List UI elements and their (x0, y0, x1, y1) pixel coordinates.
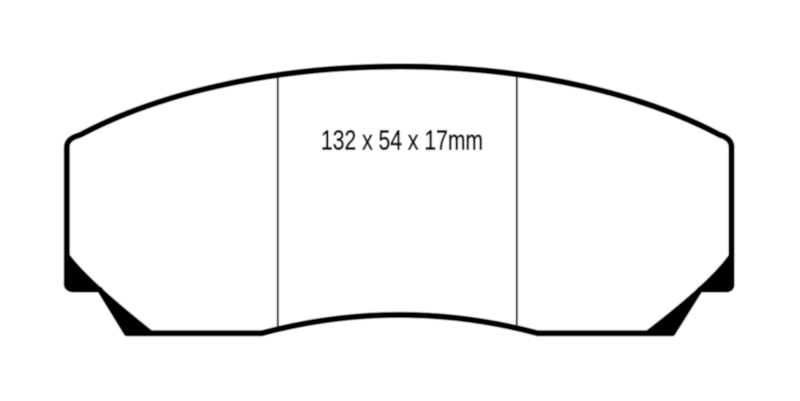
svg-text:132 x 54 x 17mm: 132 x 54 x 17mm (321, 125, 483, 156)
